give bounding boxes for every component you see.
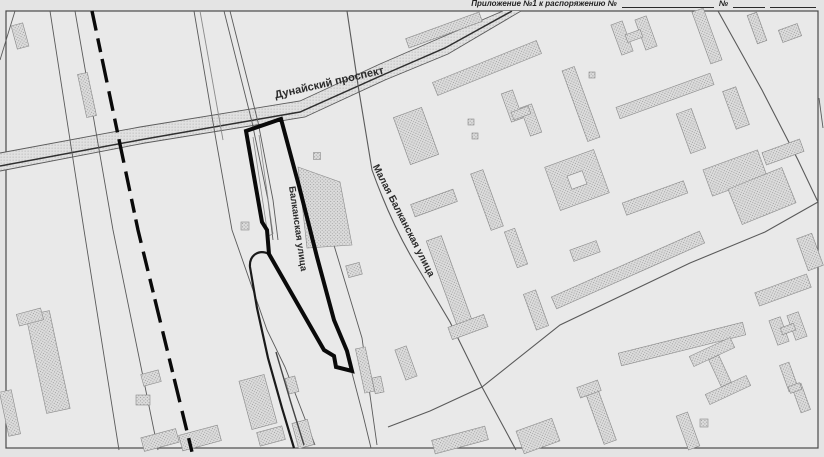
building-footprint bbox=[468, 119, 474, 125]
page: { "caption": { "appendix_text": "Приложе… bbox=[0, 0, 824, 457]
caption-blank-date bbox=[770, 0, 816, 8]
caption-number-sign: № bbox=[719, 0, 728, 8]
building-footprint bbox=[314, 153, 321, 160]
page-caption: Приложение №1 к распоряжению № № bbox=[0, 0, 816, 8]
city-plan-svg: Дунайский проспект Малая Балканская улиц… bbox=[0, 0, 824, 457]
building-footprint bbox=[136, 395, 150, 405]
caption-blank-line bbox=[622, 0, 714, 8]
building-footprint bbox=[589, 72, 595, 78]
road-line bbox=[819, 98, 823, 128]
caption-appendix-text: Приложение №1 к распоряжению № bbox=[471, 0, 617, 8]
caption-blank-number bbox=[733, 0, 765, 8]
building-footprint bbox=[472, 133, 478, 139]
building-footprint bbox=[700, 419, 708, 427]
map-canvas: Дунайский проспект Малая Балканская улиц… bbox=[0, 0, 824, 457]
building-footprint bbox=[241, 222, 249, 230]
